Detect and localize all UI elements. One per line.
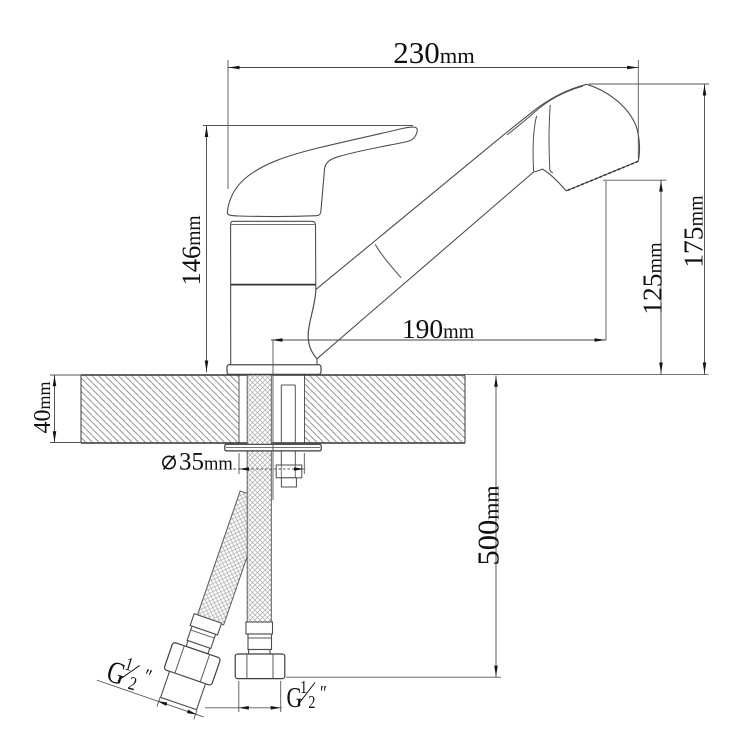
svg-text:40mm: 40mm — [30, 381, 56, 433]
svg-text:2: 2 — [308, 694, 315, 713]
svg-text:″: ″ — [320, 682, 327, 705]
